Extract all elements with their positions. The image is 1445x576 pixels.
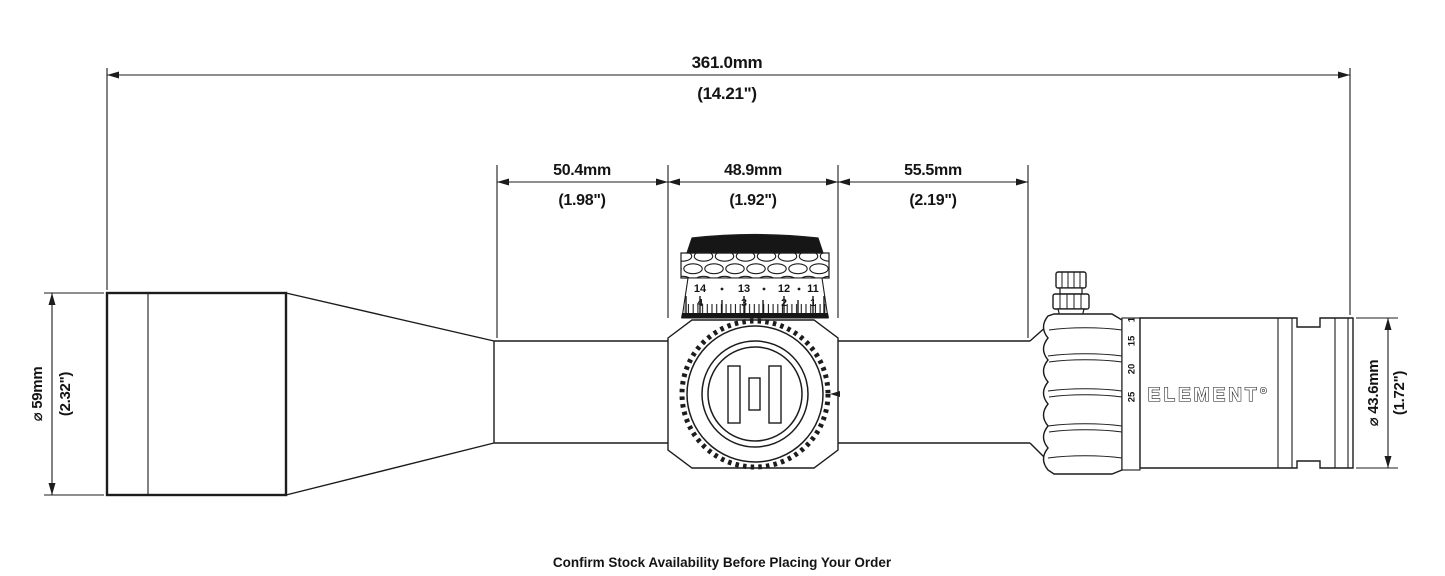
overall-length-metric: 361.0mm bbox=[692, 53, 763, 72]
turret-scale-label: 14 bbox=[694, 283, 707, 295]
taper-cone bbox=[286, 293, 494, 495]
elevation-turret: 14 13 12 11 4 3 2 1 bbox=[681, 235, 829, 319]
mag-label: 10 bbox=[1127, 312, 1138, 323]
taper-top-line bbox=[286, 293, 494, 341]
objective-bell bbox=[107, 293, 286, 495]
eyepiece: ELEMENT° bbox=[1140, 318, 1353, 468]
turret-scale-dot bbox=[721, 288, 724, 291]
rear-tube-metric: 55.5mm bbox=[904, 162, 962, 179]
objective-bell-outline bbox=[107, 293, 286, 495]
turret-minor-ticks bbox=[684, 304, 826, 313]
eyepiece-diameter-imperial: (1.72") bbox=[1391, 371, 1408, 416]
front-tube-imperial: (1.98") bbox=[558, 192, 605, 209]
mag-label: 25 bbox=[1127, 391, 1138, 402]
overall-length-imperial: (14.21") bbox=[697, 84, 757, 103]
rear-main-tube bbox=[838, 325, 1048, 461]
taper-bottom-line bbox=[286, 443, 494, 495]
front-main-tube bbox=[494, 341, 668, 443]
diagram-svg: 14 13 12 11 4 3 2 1 bbox=[0, 0, 1445, 576]
brand-logo: ELEMENT° bbox=[1148, 385, 1270, 406]
zoom-ring: 10 15 20 25 bbox=[1044, 312, 1141, 474]
rear-tube-imperial: (2.19") bbox=[909, 192, 956, 209]
turret-scale-label: 11 bbox=[807, 283, 819, 295]
turret-zero-strip bbox=[681, 313, 829, 318]
turret-scale-label: 12 bbox=[778, 283, 790, 295]
objective-diameter-imperial: (2.32") bbox=[57, 372, 74, 417]
throw-lever-stud bbox=[1053, 272, 1089, 317]
turret-scale-dot bbox=[763, 288, 766, 291]
saddle-metric: 48.9mm bbox=[724, 162, 782, 179]
turret-knurl-band bbox=[681, 253, 829, 278]
battery-door-slot-left bbox=[728, 366, 740, 423]
objective-diameter-metric: ⌀ 59mm bbox=[29, 367, 46, 422]
zoom-ring-body bbox=[1044, 314, 1123, 474]
mag-label: 15 bbox=[1127, 335, 1138, 346]
scope-dimension-diagram: 14 13 12 11 4 3 2 1 bbox=[0, 0, 1445, 576]
dimension-objective-diameter: ⌀ 59mm (2.32") bbox=[29, 293, 104, 495]
mag-label: 20 bbox=[1127, 364, 1138, 375]
battery-door-slot-right bbox=[769, 366, 781, 423]
stud-top-tier bbox=[1056, 272, 1086, 288]
dimension-eyepiece-diameter: ⌀ 43.6mm (1.72") bbox=[1356, 318, 1408, 468]
turret-cap bbox=[687, 235, 823, 254]
stud-bottom-tier bbox=[1053, 294, 1089, 309]
eyepiece-diameter-metric: ⌀ 43.6mm bbox=[1365, 360, 1382, 427]
turret-scale-label: 13 bbox=[738, 283, 750, 295]
battery-door-slot-center bbox=[749, 378, 760, 410]
turret-scale-dot bbox=[798, 288, 801, 291]
stud-waist bbox=[1060, 288, 1082, 294]
saddle-imperial: (1.92") bbox=[729, 192, 776, 209]
footer-note: Confirm Stock Availability Before Placin… bbox=[553, 555, 892, 570]
front-tube-metric: 50.4mm bbox=[553, 162, 611, 179]
scope-body: 14 13 12 11 4 3 2 1 bbox=[107, 235, 1353, 496]
